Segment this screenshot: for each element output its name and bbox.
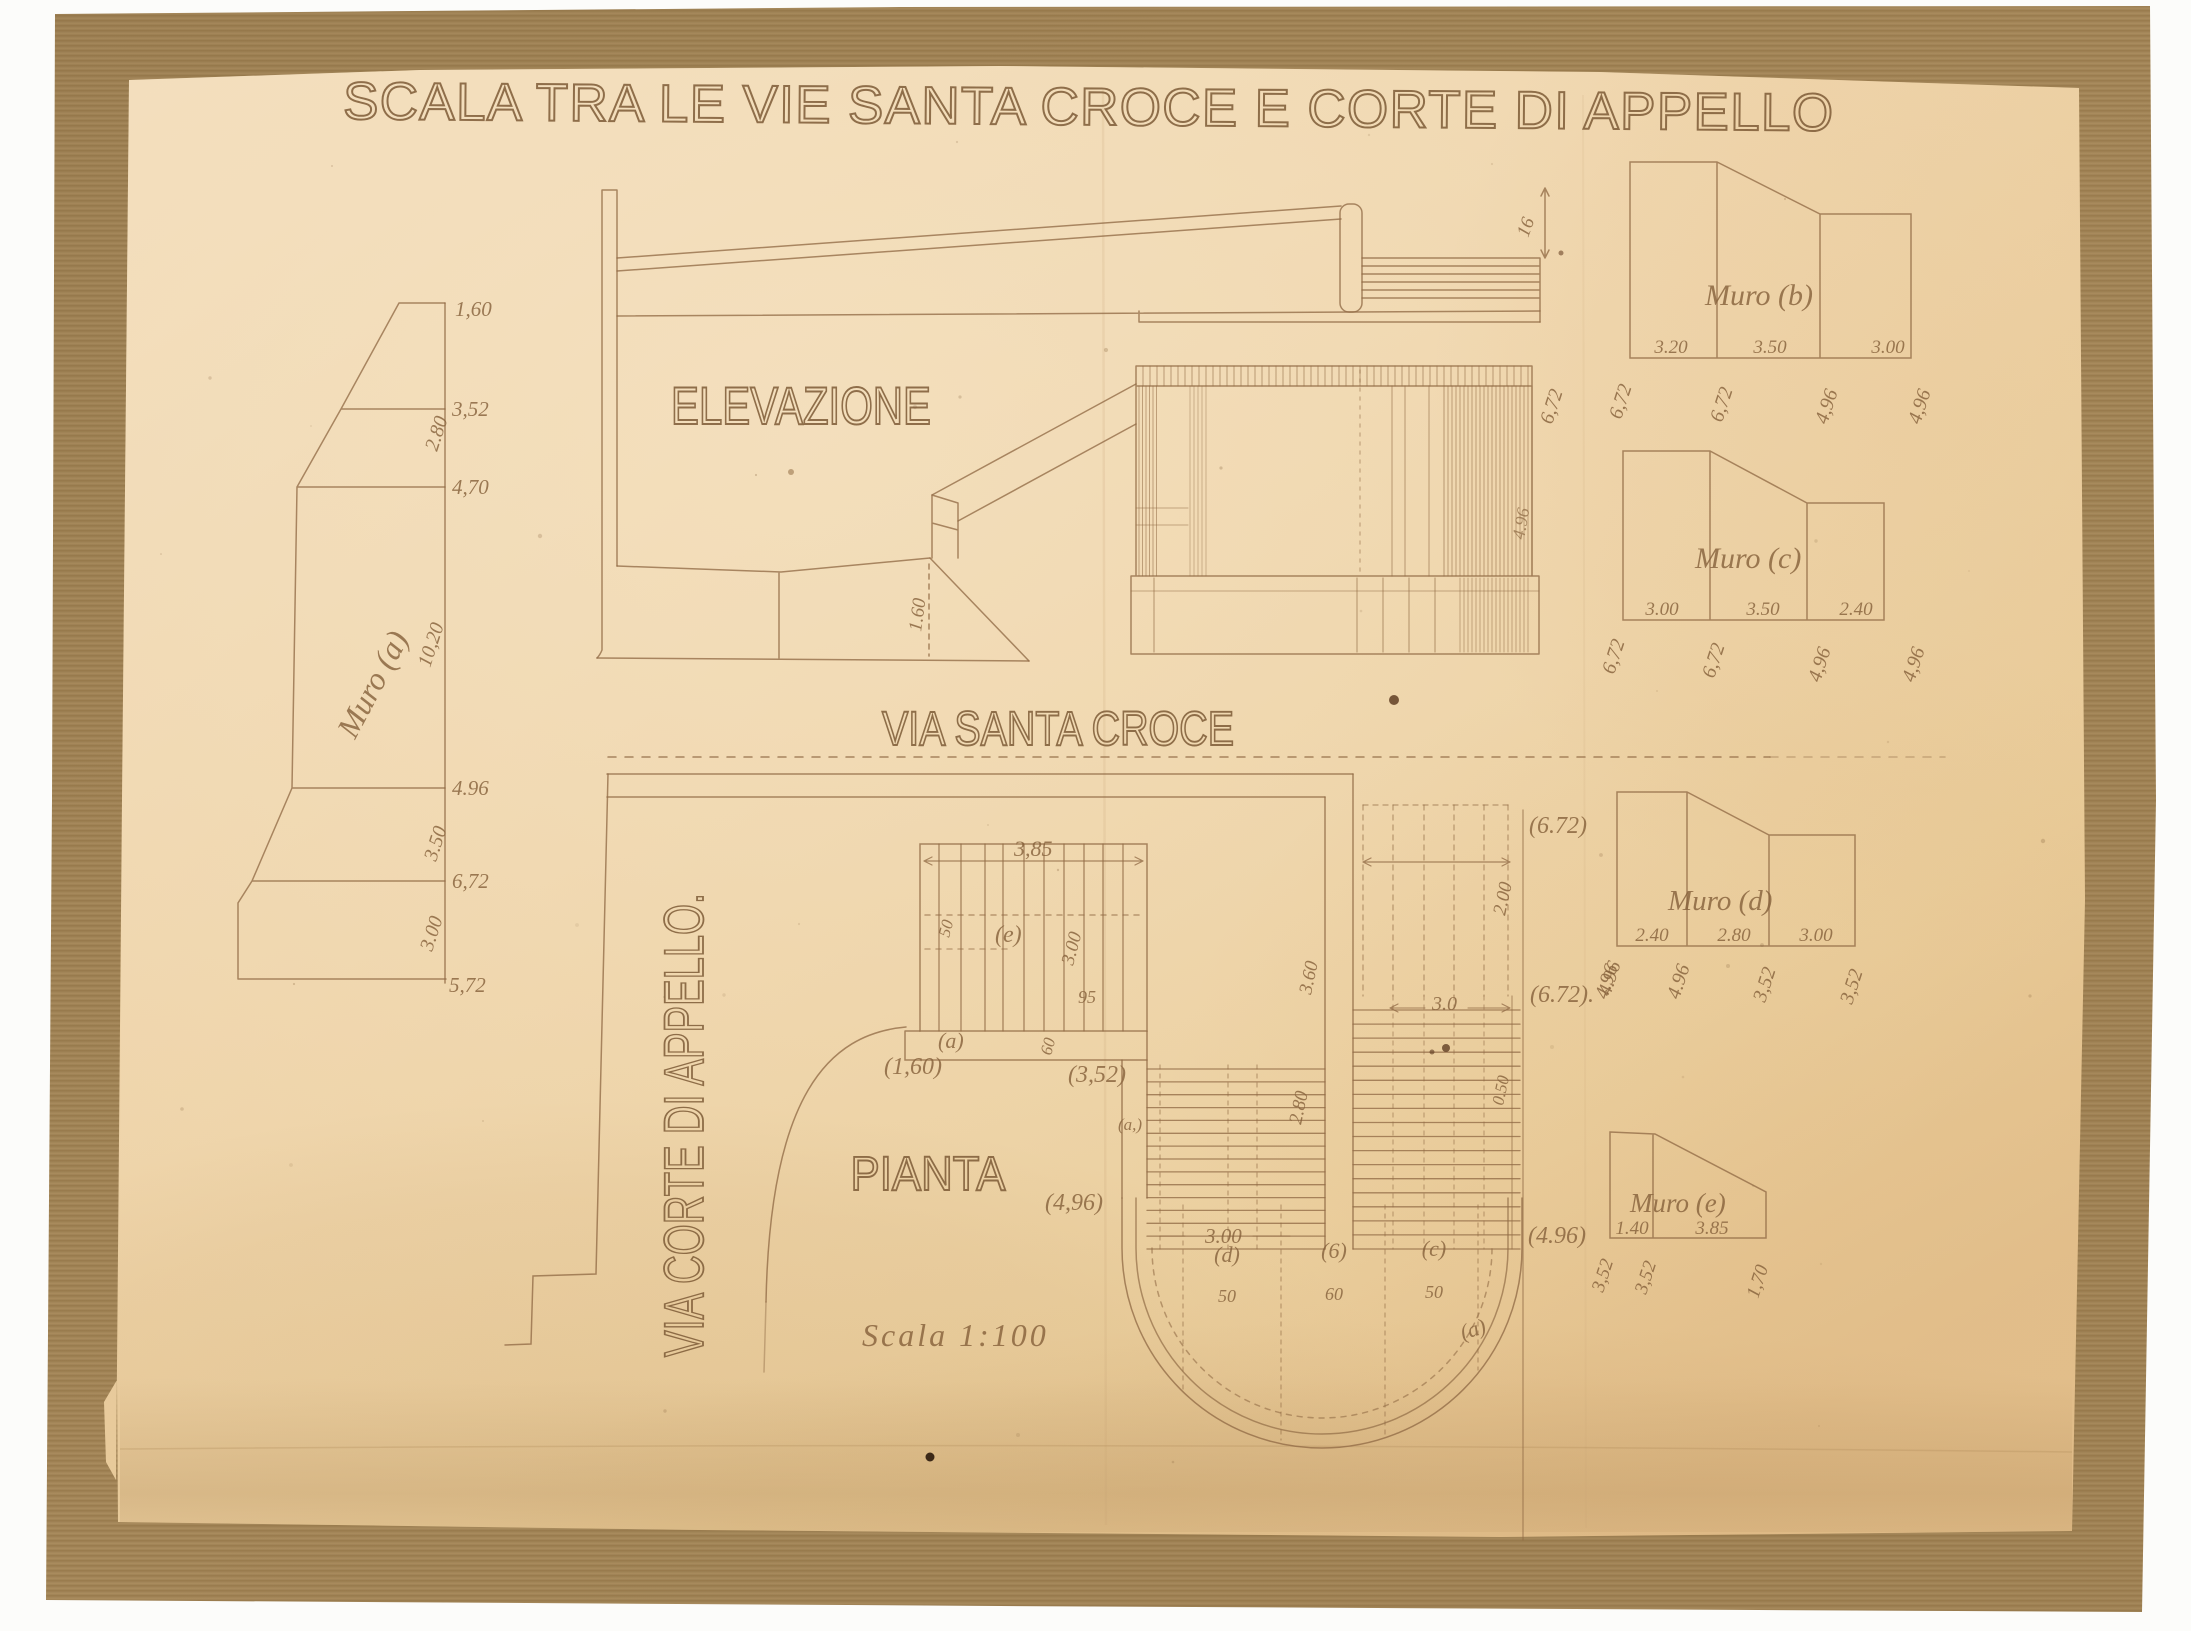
svg-text:3.0: 3.0: [1431, 993, 1457, 1015]
svg-text:4.96: 4.96: [452, 776, 489, 800]
svg-text:(d): (d): [1214, 1242, 1240, 1267]
svg-text:6,72: 6,72: [452, 869, 489, 893]
svg-text:3.00: 3.00: [1798, 925, 1833, 946]
svg-text:(6.72): (6.72): [1529, 813, 1587, 839]
svg-text:(4.96): (4.96): [1528, 1223, 1586, 1249]
svg-text:60: 60: [1325, 1284, 1343, 1304]
svg-text:3.50: 3.50: [1745, 599, 1780, 620]
svg-text:3,85: 3,85: [1013, 836, 1053, 861]
svg-text:Muro (d): Muro (d): [1667, 885, 1772, 917]
svg-text:(a): (a): [938, 1028, 964, 1053]
svg-text:(3,52): (3,52): [1068, 1062, 1126, 1088]
svg-text:Muro (c): Muro (c): [1694, 542, 1801, 575]
svg-text:3.50: 3.50: [1752, 337, 1787, 358]
svg-text:(4,96): (4,96): [1045, 1190, 1103, 1216]
svg-text:VIA SANTA CROCE: VIA SANTA CROCE: [882, 703, 1234, 756]
svg-text:5,72: 5,72: [449, 973, 486, 997]
svg-text:50: 50: [1218, 1286, 1236, 1306]
svg-text:(6.72).: (6.72).: [1530, 982, 1594, 1008]
svg-text:SCALA TRA LE VIE SANTA CROCE E: SCALA TRA LE VIE SANTA CROCE E CORTE DI …: [343, 72, 1833, 143]
svg-text:1,60: 1,60: [455, 297, 492, 321]
svg-text:3.00: 3.00: [1644, 599, 1679, 620]
svg-text:PIANTA: PIANTA: [851, 1148, 1006, 1201]
svg-text:2.80: 2.80: [1717, 925, 1751, 946]
svg-text:ELEVAZIONE: ELEVAZIONE: [671, 377, 931, 436]
svg-text:(6): (6): [1321, 1238, 1347, 1263]
svg-text:Muro (e): Muro (e): [1629, 1188, 1726, 1218]
svg-text:4,70: 4,70: [452, 475, 489, 499]
svg-text:3.85: 3.85: [1694, 1218, 1728, 1239]
svg-text:3.00: 3.00: [1870, 337, 1905, 358]
svg-text:(a,): (a,): [1118, 1115, 1142, 1134]
svg-text:(c): (c): [1422, 1236, 1446, 1261]
svg-text:3,52: 3,52: [451, 397, 489, 421]
svg-text:(1,60): (1,60): [884, 1054, 942, 1080]
svg-text:2.40: 2.40: [1635, 925, 1669, 946]
svg-text:3.20: 3.20: [1653, 337, 1688, 358]
svg-text:50: 50: [1425, 1282, 1443, 1302]
svg-text:2.40: 2.40: [1839, 599, 1873, 620]
svg-text:(e): (e): [995, 922, 1022, 948]
svg-text:VIA CORTE DI APPELLO.: VIA CORTE DI APPELLO.: [652, 893, 715, 1357]
svg-text:Muro (b): Muro (b): [1704, 279, 1813, 312]
svg-text:1.40: 1.40: [1615, 1218, 1649, 1239]
svg-text:Scala 1:100: Scala 1:100: [862, 1317, 1049, 1353]
svg-text:95: 95: [1078, 987, 1096, 1007]
